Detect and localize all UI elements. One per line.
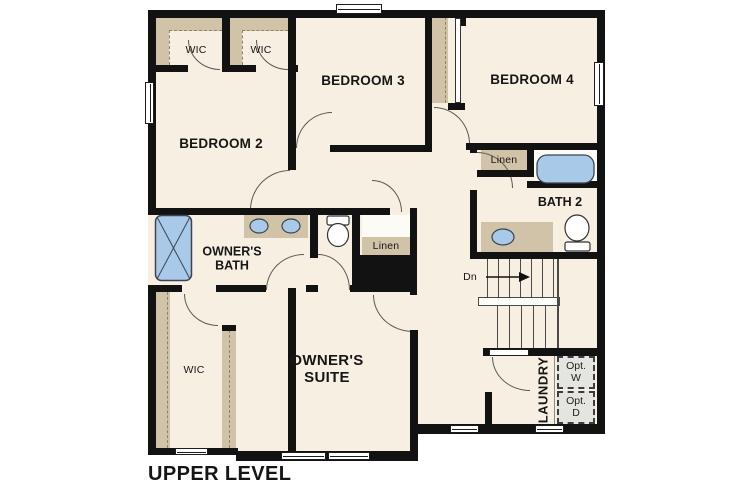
owners-wic-window (175, 448, 208, 455)
owners-suite-label-line2: SUITE (290, 369, 363, 386)
bedroom4-window (594, 62, 604, 106)
wall-bedroom4-bottom (466, 143, 605, 150)
hall-window (450, 425, 479, 433)
wall-closet4-bottom (448, 103, 465, 110)
wall-owners-wic-cap (222, 325, 236, 331)
wall-bottom-right-exterior (410, 424, 605, 434)
stair-tread (542, 259, 543, 297)
wall-exterior-left-lower (148, 285, 156, 455)
wic1-rod-side (169, 30, 170, 65)
bath2-label: BATH 2 (538, 195, 582, 209)
opt-dryer-label-line1: Opt. (566, 396, 586, 408)
wall-suite-top-c (306, 285, 318, 292)
wic1-rod (169, 30, 222, 31)
optional-washer-box: Opt. W (557, 356, 595, 389)
wic1-shelf-side (156, 18, 169, 65)
wall-linen-hall-mass (360, 255, 412, 290)
wall-bath2-left (470, 190, 477, 259)
wic2-rod-side (242, 30, 243, 65)
stair-tread (531, 259, 532, 297)
wic1-label: WIC (185, 44, 206, 56)
laundry-label: LAUNDRY (537, 357, 552, 424)
wall-bedroom3-bottom (330, 145, 432, 152)
wall-laundry-left (485, 392, 492, 430)
optional-dryer-box: Opt. D (557, 391, 595, 424)
page-title: UPPER LEVEL (148, 463, 291, 486)
owners-suite-label-line1: OWNER'S (290, 352, 363, 369)
bedroom4-closet-rod (445, 17, 446, 103)
wall-suite-right (410, 330, 418, 461)
stair-tread (521, 306, 522, 348)
linen-hall-niche (362, 215, 410, 237)
stair-tread (498, 259, 499, 297)
wic2-shelf-side (230, 18, 242, 65)
bath2-counter (481, 222, 553, 252)
wall-bedroom2-3-divider (288, 10, 296, 170)
stairs-down-label: Dn (463, 271, 477, 283)
owners-bath-label-line1: OWNER'S (202, 245, 261, 259)
stair-tread (553, 259, 554, 297)
tub-niche (534, 150, 597, 181)
opt-dryer-label-line2: D (572, 408, 580, 420)
stair-tread (520, 259, 521, 297)
wall-linen-bath2-bottom (477, 170, 534, 177)
linen-bath2-label: Linen (491, 154, 518, 166)
stair-tread (509, 306, 510, 348)
wall-tub-bottom (527, 181, 605, 188)
linen-hall-label: Linen (373, 240, 400, 252)
bedroom3-window (336, 4, 382, 14)
stair-tread (487, 259, 488, 297)
owners-suite-label: OWNER'S SUITE (290, 352, 363, 387)
wall-toilet-room-right (352, 208, 360, 290)
wic2-label: WIC (250, 44, 271, 56)
stair-stringer (557, 259, 559, 348)
owners-suite-window-2 (328, 452, 370, 460)
laundry-alcove-line (554, 356, 555, 424)
wall-suite-top-a (148, 285, 182, 292)
bedroom2-label: BEDROOM 2 (179, 136, 263, 152)
wall-suite-top-b (216, 285, 266, 292)
owners-wic-rod-right (229, 330, 230, 448)
wall-bath2-bottom (470, 252, 605, 259)
owners-bath-label-line2: BATH (202, 259, 261, 273)
bedroom2-window (145, 82, 154, 124)
wall-wic-bottom-a (148, 65, 188, 72)
owners-wic-rod-left (167, 292, 168, 448)
bedroom4-closet-door-leaf (455, 18, 461, 103)
stair-opening (489, 349, 529, 356)
stair-landing (478, 297, 560, 306)
wic2-rod (242, 30, 288, 31)
laundry-window (535, 425, 564, 433)
bedroom3-label: BEDROOM 3 (321, 73, 405, 89)
wall-suite-bottom-exterior (236, 451, 416, 461)
opt-washer-label-line2: W (571, 373, 581, 385)
opt-washer-label-line1: Opt. (566, 361, 586, 373)
owners-bath-counter (244, 213, 308, 238)
bedroom4-label: BEDROOM 4 (490, 72, 574, 88)
stair-tread (509, 259, 510, 297)
stair-tread (545, 306, 546, 348)
stair-tread (497, 306, 498, 348)
floor-plan: Opt. W Opt. D WIC WIC BEDROOM 2 BEDROOM … (0, 0, 750, 500)
owners-wic-label: WIC (183, 364, 204, 376)
wall-bath2-left-top (470, 143, 477, 153)
wall-linen-tub-divider (527, 143, 534, 177)
owners-bath-label: OWNER'S BATH (202, 245, 261, 274)
wall-wic-divider (222, 10, 230, 72)
wall-toilet-room-left (310, 215, 318, 258)
owners-suite-window-1 (281, 452, 326, 460)
stair-tread (533, 306, 534, 348)
wall-bedroom3-right (425, 10, 432, 152)
